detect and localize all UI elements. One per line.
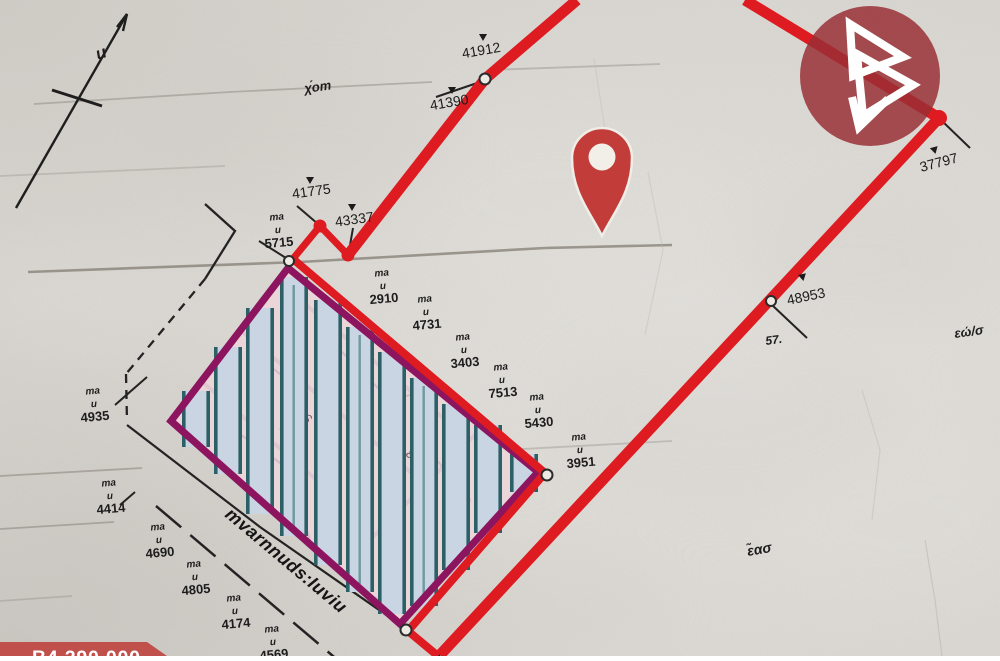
svg-text:ma: ma	[455, 331, 471, 343]
svg-text:ma: ma	[264, 623, 280, 635]
svg-text:5430: 5430	[524, 414, 554, 431]
svg-text:2910: 2910	[369, 290, 399, 307]
svg-text:ma: ma	[374, 267, 390, 279]
svg-text:ma: ma	[150, 521, 166, 533]
svg-text:ma: ma	[226, 592, 242, 604]
svg-text:5715: 5715	[264, 234, 294, 251]
svg-text:57.: 57.	[764, 332, 782, 348]
svg-text:ma: ma	[186, 558, 202, 570]
svg-text:B4,290,000: B4,290,000	[32, 647, 141, 656]
svg-text:4569: 4569	[259, 646, 289, 656]
svg-text:ma: ma	[571, 431, 587, 443]
svg-text:3403: 3403	[450, 354, 480, 371]
svg-text:4174: 4174	[221, 615, 252, 633]
svg-text:ma: ma	[85, 385, 101, 397]
svg-text:4414: 4414	[96, 500, 127, 518]
svg-text:ma: ma	[493, 361, 509, 373]
svg-text:7513: 7513	[488, 384, 518, 401]
svg-text:4690: 4690	[145, 544, 175, 561]
svg-text:4935: 4935	[80, 408, 110, 425]
svg-text:4731: 4731	[412, 316, 442, 333]
svg-text:ma: ma	[529, 391, 545, 403]
svg-text:3951: 3951	[566, 454, 596, 471]
svg-text:ma: ma	[269, 211, 285, 223]
svg-text:4805: 4805	[181, 581, 211, 598]
svg-text:ma: ma	[101, 477, 117, 489]
svg-text:ma: ma	[417, 293, 433, 305]
